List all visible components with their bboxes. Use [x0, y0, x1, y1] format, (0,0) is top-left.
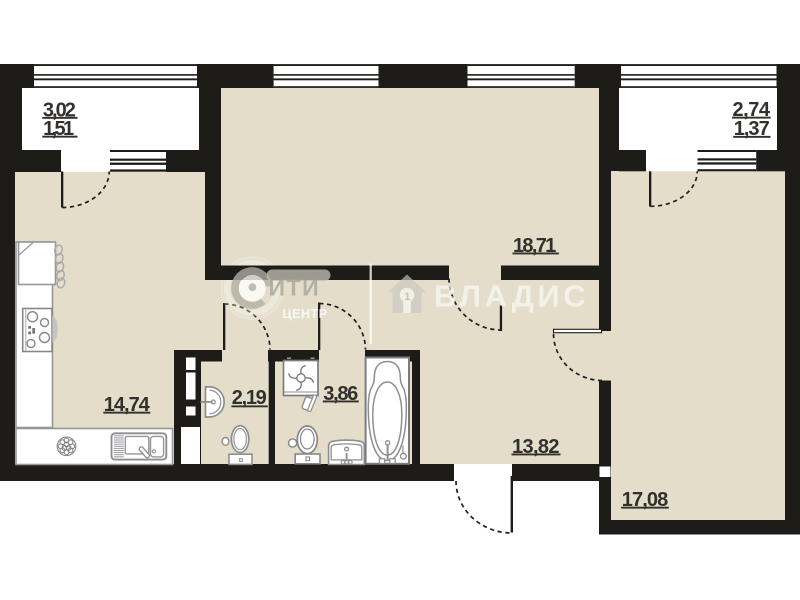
- svg-text:ЦЕНТР: ЦЕНТР: [283, 307, 328, 321]
- svg-text:1: 1: [404, 291, 410, 303]
- svg-text:ИТИ: ИТИ: [269, 275, 321, 301]
- svg-text:ВЛАДИС: ВЛАДИС: [434, 279, 589, 314]
